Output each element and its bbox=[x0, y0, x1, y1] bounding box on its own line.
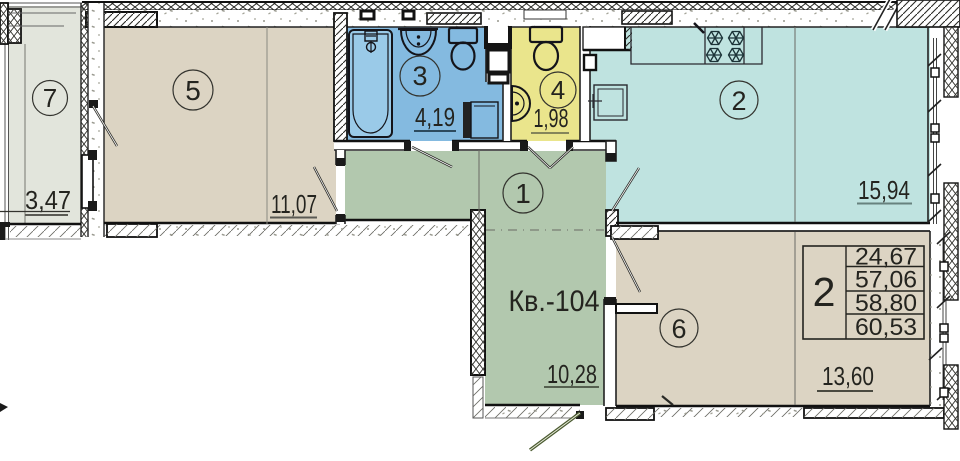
svg-text:3: 3 bbox=[412, 61, 427, 91]
svg-text:2: 2 bbox=[813, 269, 836, 315]
svg-text:4: 4 bbox=[551, 75, 565, 105]
svg-text:15,94: 15,94 bbox=[858, 175, 910, 205]
svg-text:2: 2 bbox=[731, 86, 746, 116]
svg-text:3,47: 3,47 bbox=[25, 185, 71, 215]
svg-text:6: 6 bbox=[671, 314, 686, 344]
svg-text:10,28: 10,28 bbox=[547, 359, 597, 389]
svg-text:60,53: 60,53 bbox=[855, 314, 917, 341]
svg-text:13,60: 13,60 bbox=[822, 361, 874, 391]
svg-text:1: 1 bbox=[515, 178, 531, 209]
svg-text:1,98: 1,98 bbox=[534, 103, 569, 133]
svg-text:4,19: 4,19 bbox=[415, 102, 455, 132]
svg-text:7: 7 bbox=[43, 83, 57, 113]
svg-text:11,07: 11,07 bbox=[271, 189, 317, 219]
svg-text:Кв.-104: Кв.-104 bbox=[509, 285, 600, 318]
svg-text:58,80: 58,80 bbox=[855, 290, 917, 317]
svg-text:5: 5 bbox=[185, 75, 201, 106]
